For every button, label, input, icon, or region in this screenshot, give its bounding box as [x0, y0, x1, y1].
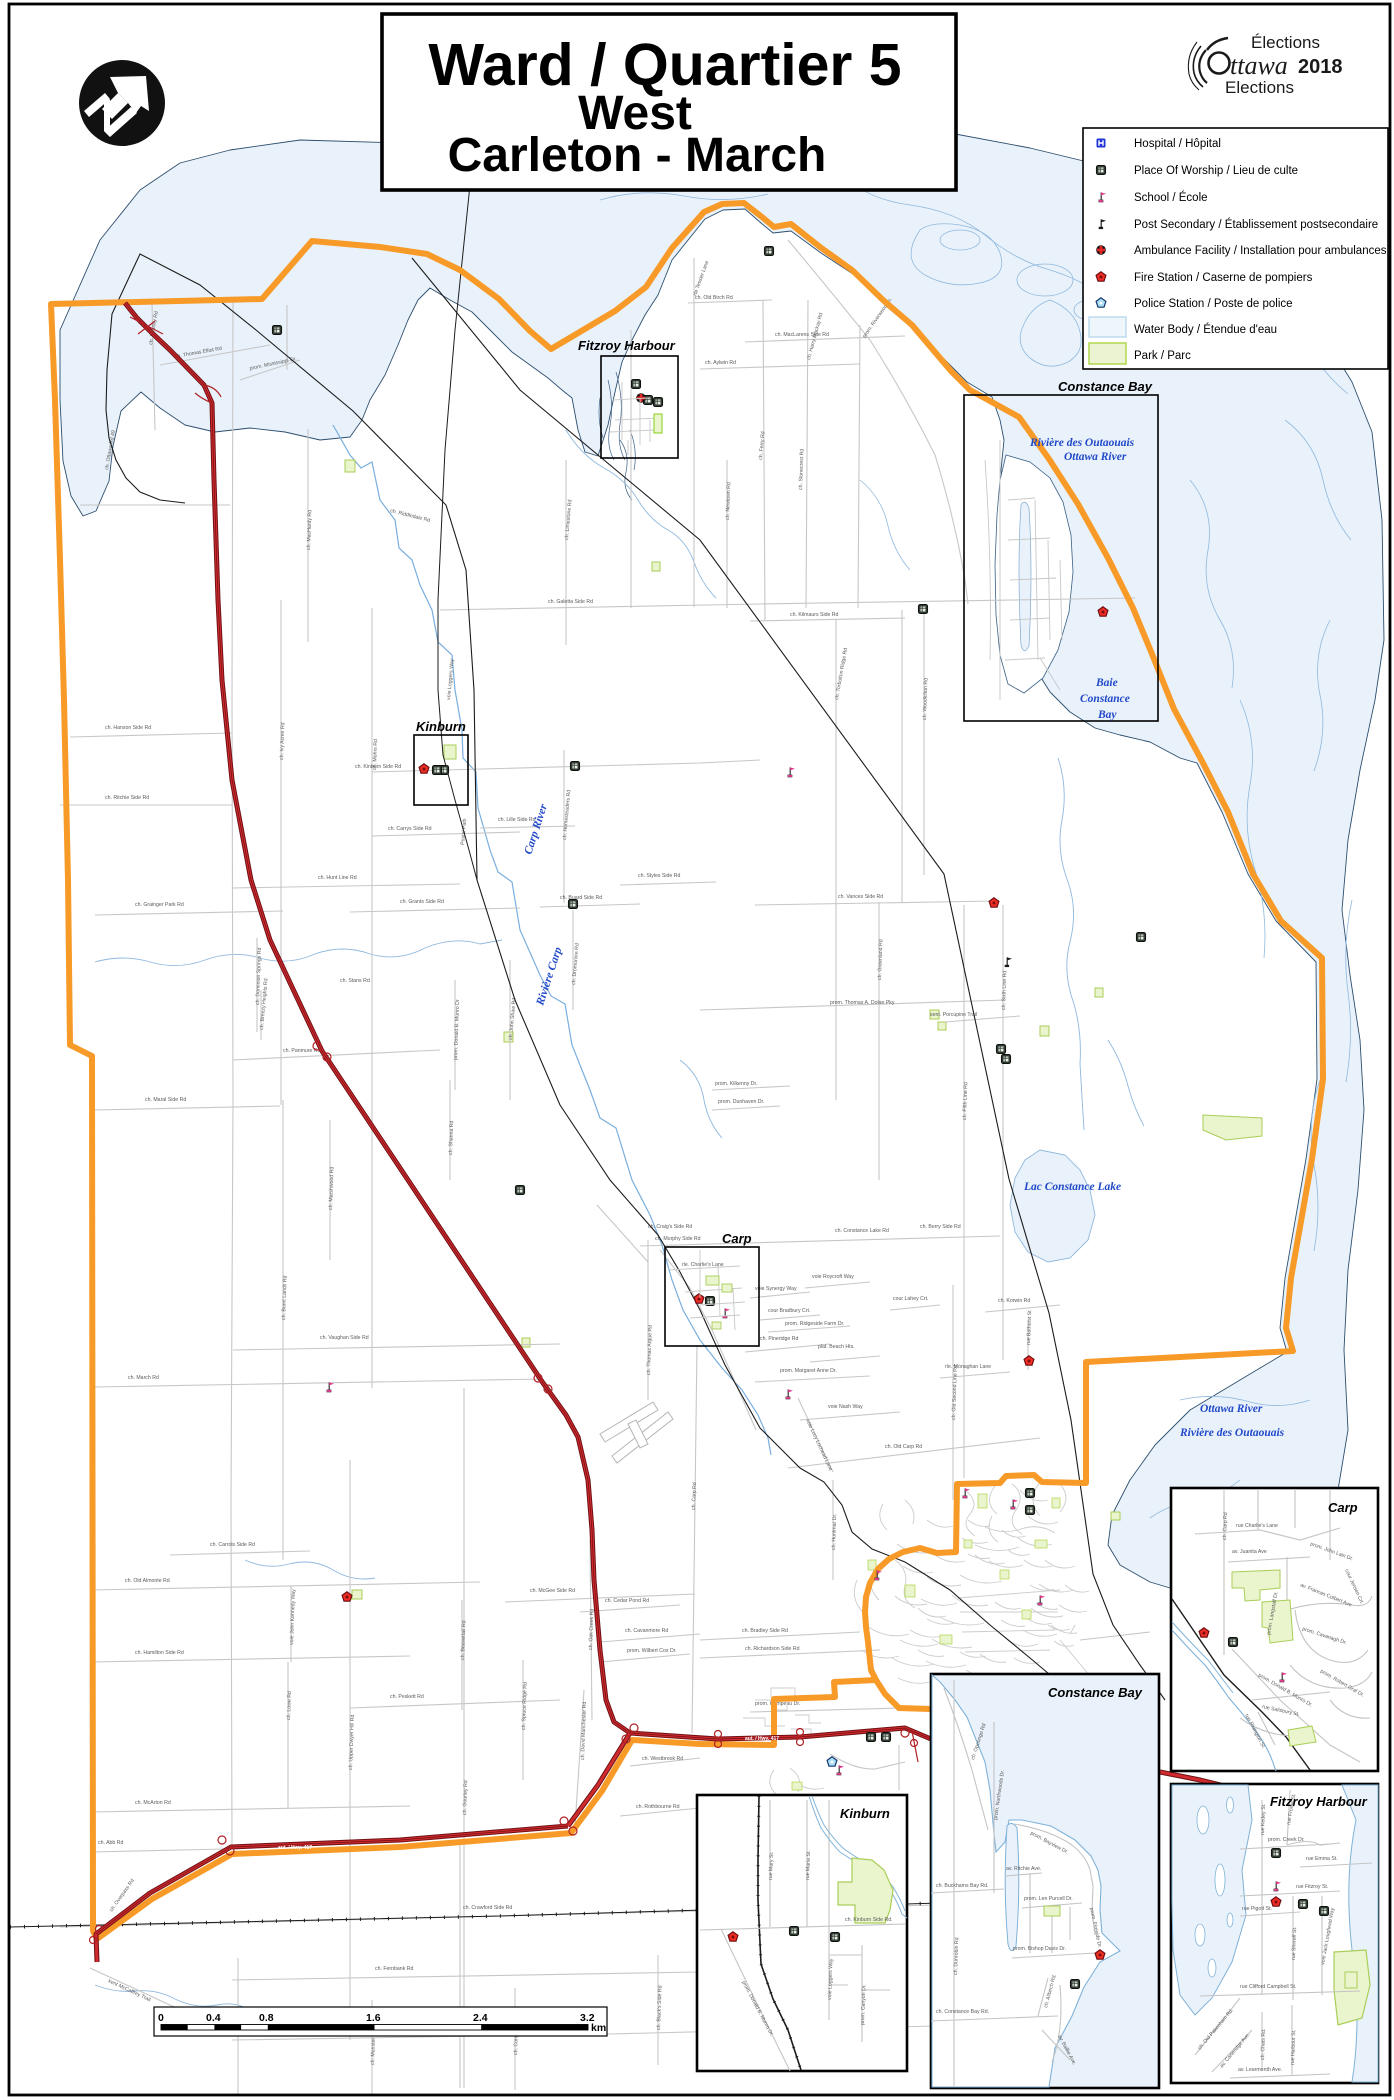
svg-text:Fire Station / Caserne de pomp: Fire Station / Caserne de pompiers — [1134, 272, 1313, 284]
svg-text:prom. Dunhaven Dr.: prom. Dunhaven Dr. — [718, 1099, 764, 1105]
svg-text:Baie: Baie — [1095, 677, 1118, 689]
svg-text:ch. March Rd: ch. March Rd — [128, 1375, 159, 1381]
svg-text:ch. Rothbourne Rd: ch. Rothbourne Rd — [636, 1804, 680, 1810]
svg-text:1.6: 1.6 — [366, 2012, 381, 2024]
svg-text:aut. / Hwy. 417: aut. / Hwy. 417 — [278, 1845, 312, 1851]
svg-text:ch. Vaughan Side Rd: ch. Vaughan Side Rd — [320, 1335, 369, 1341]
svg-text:ch. Buard Side Rd: ch. Buard Side Rd — [560, 895, 602, 901]
svg-text:Lac Constance Lake: Lac Constance Lake — [1023, 1181, 1121, 1193]
svg-text:cour Bradbury Crt.: cour Bradbury Crt. — [768, 1308, 810, 1314]
svg-text:cour Lahey Crt.: cour Lahey Crt. — [893, 1296, 928, 1302]
svg-text:ch. Pineridge Rd: ch. Pineridge Rd — [760, 1336, 798, 1342]
svg-text:Ottawa River: Ottawa River — [1200, 1403, 1263, 1415]
svg-text:ch. Peskett Rd: ch. Peskett Rd — [390, 1694, 424, 1700]
svg-text:ch. Huntmar Dr.: ch. Huntmar Dr. — [831, 1514, 838, 1551]
svg-text:voie Synergy Way: voie Synergy Way — [755, 1286, 797, 1292]
svg-text:prom. Kilkenny Dr.: prom. Kilkenny Dr. — [715, 1081, 757, 1087]
svg-text:Elections: Elections — [1225, 78, 1294, 97]
svg-text:rue Fitzroy St.: rue Fitzroy St. — [1296, 1884, 1328, 1890]
svg-text:Ottawa River: Ottawa River — [1064, 451, 1127, 463]
svg-text:2.4: 2.4 — [473, 2012, 488, 2024]
svg-text:rue Emma St.: rue Emma St. — [1306, 1856, 1338, 1862]
svg-text:ch. Hanson Side Rd: ch. Hanson Side Rd — [105, 725, 151, 731]
svg-text:0: 0 — [158, 2012, 164, 2024]
svg-text:ch. Gourley Rd: ch. Gourley Rd — [462, 1780, 469, 1815]
svg-text:prom. Margaret Anne Dr.: prom. Margaret Anne Dr. — [780, 1368, 837, 1374]
svg-text:Post Secondary / Établissement: Post Secondary / Établissement postsecon… — [1134, 218, 1378, 231]
svg-text:prom. Len Purcell Dr.: prom. Len Purcell Dr. — [1024, 1896, 1073, 1902]
svg-text:sent. Porcupine Trail: sent. Porcupine Trail — [930, 1012, 977, 1018]
svg-text:ch. Mohrs Rd: ch. Mohrs Rd — [372, 739, 379, 770]
svg-text:ch. Abb Rd: ch. Abb Rd — [98, 1840, 123, 1846]
svg-text:0.8: 0.8 — [259, 2012, 274, 2024]
svg-text:ch. Old Carp Rd: ch. Old Carp Rd — [885, 1444, 922, 1450]
svg-text:ch. Craig's Side Rd: ch. Craig's Side Rd — [648, 1224, 692, 1230]
svg-text:ch. Hamilton Side Rd: ch. Hamilton Side Rd — [135, 1650, 184, 1656]
svg-text:ch. MacLarens Side Rd: ch. MacLarens Side Rd — [775, 332, 829, 338]
svg-text:rue Maria St.: rue Maria St. — [805, 1850, 812, 1880]
svg-text:Bay: Bay — [1097, 709, 1117, 721]
svg-text:Police Station / Poste de poli: Police Station / Poste de police — [1134, 298, 1293, 310]
svg-text:Ambulance Facility / Installat: Ambulance Facility / Installation pour a… — [1134, 245, 1387, 257]
svg-text:ch. Carp Rd: ch. Carp Rd — [691, 1482, 698, 1510]
svg-text:rue Kedey St.: rue Kedey St. — [1260, 1803, 1267, 1835]
svg-text:prom. Creek Dr.: prom. Creek Dr. — [1268, 1837, 1305, 1843]
svg-text:av. Juanita Ave: av. Juanita Ave — [1232, 1549, 1267, 1555]
svg-text:Élections: Élections — [1251, 33, 1320, 52]
svg-text:Kinburn: Kinburn — [840, 1806, 890, 1821]
svg-text:Constance Bay: Constance Bay — [1048, 1685, 1143, 1700]
svg-text:ch. Lille Side Rd: ch. Lille Side Rd — [498, 817, 536, 823]
svg-text:ch. Carrols Side Rd: ch. Carrols Side Rd — [210, 1542, 255, 1548]
svg-text:prom. Campeau Dr.: prom. Campeau Dr. — [755, 1701, 800, 1707]
svg-text:rue Charlie's Lane: rue Charlie's Lane — [1236, 1523, 1278, 1529]
svg-text:ch. Carp Rd: ch. Carp Rd — [1222, 1512, 1229, 1540]
svg-text:School / École: School / École — [1134, 191, 1208, 204]
svg-text:ch. Aylwin Rd: ch. Aylwin Rd — [705, 360, 736, 366]
svg-text:ch. Ritchie Side Rd: ch. Ritchie Side Rd — [105, 795, 149, 801]
svg-text:0.4: 0.4 — [206, 2012, 221, 2024]
svg-text:ch. Old Almonte Rd: ch. Old Almonte Rd — [125, 1578, 170, 1584]
svg-text:av. Learmonth Ave.: av. Learmonth Ave. — [1238, 2067, 1282, 2073]
svg-text:ch. Styles Side Rd: ch. Styles Side Rd — [638, 873, 680, 879]
svg-text:ch. Carrys Side Rd: ch. Carrys Side Rd — [388, 826, 432, 832]
svg-text:ch. Fernbank Rd: ch. Fernbank Rd — [375, 1966, 413, 1972]
svg-text:Constance Bay: Constance Bay — [1058, 379, 1153, 394]
svg-text:rue Mary St.: rue Mary St. — [768, 1852, 775, 1880]
svg-text:km: km — [591, 2022, 606, 2034]
svg-text:ch. Old Birch Rd: ch. Old Birch Rd — [695, 295, 733, 301]
svg-text:ch. Crawford Side Rd: ch. Crawford Side Rd — [463, 1905, 512, 1911]
svg-text:Carp: Carp — [722, 1231, 752, 1246]
svg-text:2018: 2018 — [1298, 56, 1343, 78]
svg-text:Constance: Constance — [1080, 693, 1130, 705]
svg-text:ch. Westbrook Rd: ch. Westbrook Rd — [642, 1756, 683, 1762]
svg-text:ch. Kilmaurs Side Rd: ch. Kilmaurs Side Rd — [790, 612, 839, 618]
svg-text:plat. Beach Hts.: plat. Beach Hts. — [818, 1344, 855, 1350]
svg-text:ch. McArton Rd: ch. McArton Rd — [135, 1800, 171, 1806]
svg-text:prom. Bishop Davis Dr.: prom. Bishop Davis Dr. — [1013, 1946, 1066, 1952]
svg-text:ch. McGee Side Rd: ch. McGee Side Rd — [530, 1588, 575, 1594]
svg-text:ch. Cavanmore Rd: ch. Cavanmore Rd — [625, 1628, 668, 1634]
svg-text:ch. Constance Bay Rd.: ch. Constance Bay Rd. — [936, 2009, 989, 2015]
svg-text:ch. Constance Lake Rd: ch. Constance Lake Rd — [835, 1228, 889, 1234]
svg-text:ch. Lowe Rd: ch. Lowe Rd — [286, 1691, 293, 1720]
svg-text:ch. Buckhams Bay Rd.: ch. Buckhams Bay Rd. — [936, 1883, 988, 1889]
svg-text:ch. Stans Rd: ch. Stans Rd — [340, 978, 370, 984]
svg-text:ch. Korwin Rd: ch. Korwin Rd — [998, 1298, 1030, 1304]
svg-text:voie Nash Way: voie Nash Way — [828, 1404, 863, 1410]
svg-text:ch. Bradley Side Rd: ch. Bradley Side Rd — [742, 1628, 788, 1634]
svg-text:Park / Parc: Park / Parc — [1134, 350, 1191, 362]
svg-text:voie Roycroft Way: voie Roycroft Way — [812, 1274, 854, 1280]
svg-text:Hospital / Hôpital: Hospital / Hôpital — [1134, 138, 1221, 150]
svg-text:Carp: Carp — [1328, 1500, 1358, 1515]
svg-text:ch. Maral Side Rd: ch. Maral Side Rd — [145, 1097, 186, 1103]
svg-text:prom. Ridgeside Farm Dr.: prom. Ridgeside Farm Dr. — [785, 1321, 844, 1327]
svg-text:ch. Richardson Side Rd: ch. Richardson Side Rd — [745, 1646, 800, 1652]
svg-text:rue Bathurst St: rue Bathurst St — [1026, 1310, 1033, 1345]
svg-text:ch. Kinburn Side Rd.: ch. Kinburn Side Rd. — [845, 1917, 893, 1923]
svg-text:Fitzroy Harbour: Fitzroy Harbour — [1270, 1794, 1368, 1809]
svg-text:ch. Shanna Rd: ch. Shanna Rd — [448, 1120, 455, 1155]
svg-text:rue Harbour St.: rue Harbour St. — [1290, 2029, 1297, 2065]
svg-text:Place Of Worship / Lieu de cul: Place Of Worship / Lieu de culte — [1134, 165, 1298, 177]
svg-text:ch. Hunt Line Rd: ch. Hunt Line Rd — [318, 875, 357, 881]
svg-text:prom. Thomas A. Dolan Pky: prom. Thomas A. Dolan Pky — [830, 1000, 895, 1006]
svg-text:prom. Wilbert Cox Dr.: prom. Wilbert Cox Dr. — [627, 1648, 677, 1654]
svg-text:ch. Grants Side Rd: ch. Grants Side Rd — [400, 899, 444, 905]
svg-text:rue Pigott St.: rue Pigott St. — [1242, 1906, 1272, 1912]
svg-text:ch. Galetta Side Rd: ch. Galetta Side Rd — [548, 599, 593, 605]
svg-text:Water Body / Étendue d'eau: Water Body / Étendue d'eau — [1134, 323, 1277, 336]
svg-text:aut. / Hwy. 417: aut. / Hwy. 417 — [745, 1736, 779, 1742]
svg-text:ch. Grainger Park Rd: ch. Grainger Park Rd — [135, 902, 184, 908]
svg-text:ttawa: ttawa — [1230, 51, 1288, 80]
svg-text:Rivière des Outaouais: Rivière des Outaouais — [1029, 437, 1135, 449]
svg-text:rue Clifford Campbell St.: rue Clifford Campbell St. — [1240, 1984, 1296, 1990]
svg-text:rue Shirreff St.: rue Shirreff St. — [1291, 1927, 1298, 1961]
svg-text:Carleton - March: Carleton - March — [448, 129, 827, 182]
svg-text:ch. Chats Rd.: ch. Chats Rd. — [1260, 2028, 1267, 2060]
svg-text:Kinburn: Kinburn — [416, 719, 466, 734]
svg-text:ch. Vances Side Rd: ch. Vances Side Rd — [838, 894, 883, 900]
svg-text:Rivière des Outaouais: Rivière des Outaouais — [1179, 1427, 1285, 1439]
svg-text:av. Ritchie Ave.: av. Ritchie Ave. — [1006, 1866, 1041, 1872]
svg-text:ch. Berry Side Rd: ch. Berry Side Rd — [920, 1224, 961, 1230]
svg-text:Fitzroy Harbour: Fitzroy Harbour — [578, 338, 676, 353]
svg-text:ch. Cedar Pond Rd: ch. Cedar Pond Rd — [605, 1598, 649, 1604]
